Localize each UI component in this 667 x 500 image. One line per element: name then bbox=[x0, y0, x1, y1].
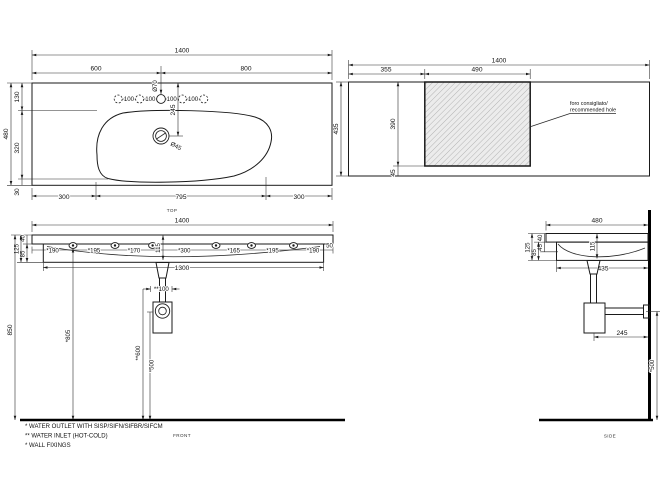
dim-fix-5: *165 bbox=[227, 247, 240, 254]
front-dim-body-width: 1300 bbox=[43, 263, 323, 272]
dim-hole-pitch: 100 bbox=[167, 96, 178, 103]
tailpipe bbox=[591, 274, 597, 303]
front-service-dims: **100 *805 **600 *500 bbox=[65, 248, 180, 420]
tap-hole-row: 100 100 100 100 Ø70 bbox=[114, 77, 208, 103]
note-line1: foro consigliato/ bbox=[570, 101, 608, 107]
tap-hole-optional-icon bbox=[200, 95, 208, 103]
dim-hole-pitch: 100 bbox=[145, 96, 156, 103]
top-view-dims-bottom: 300 795 300 bbox=[32, 177, 332, 201]
drain: Ø45 bbox=[153, 128, 183, 152]
side-dims-top: 480 bbox=[546, 218, 648, 231]
dim-drain-offset: 245 bbox=[170, 104, 177, 115]
dim-front-apron-height: 85 bbox=[20, 250, 27, 257]
front-dims-top: 1400 bbox=[32, 218, 333, 233]
dim-bottom-margin: 30 bbox=[14, 188, 21, 196]
cutout-view: 1400 355 490 435 390 45 foro consigliato… bbox=[333, 58, 650, 177]
basin-outline bbox=[97, 110, 272, 182]
side-view-label: SIDE bbox=[604, 434, 616, 439]
cutout-dims-left: 435 390 45 bbox=[333, 82, 425, 177]
legend-water-outlet: * WATER OUTLET WITH SISP/SIFN/SIFBR/SIFC… bbox=[25, 424, 163, 430]
dim-fix-3: *170 bbox=[128, 247, 141, 254]
tap-hole-optional-icon bbox=[114, 95, 122, 103]
side-dim-outlet-offset: 245 bbox=[594, 330, 648, 341]
tap-hole-optional-icon bbox=[136, 95, 144, 103]
dim-overall-depth: 480 bbox=[3, 128, 10, 139]
dim-side-overall-depth: 480 bbox=[591, 218, 602, 225]
side-dim-bottom-span: 435 bbox=[557, 260, 649, 272]
top-view-dims-left: 130 480 320 30 bbox=[3, 83, 108, 196]
fixing-bolt-icon bbox=[111, 243, 119, 249]
front-view-label: FRONT bbox=[173, 433, 191, 438]
legend-wall-fixings: * WALL FIXINGS bbox=[25, 443, 71, 449]
dim-hole-pitch: 100 bbox=[188, 96, 199, 103]
dim-basin-span: 320 bbox=[14, 142, 21, 153]
dim-side-front-height: 125 bbox=[525, 242, 532, 253]
dim-fix-4: *300 bbox=[178, 247, 191, 254]
dim-bottom-left: 300 bbox=[58, 194, 69, 201]
dim-side-outlet-height: *500 bbox=[649, 359, 656, 372]
dim-front-body-width: 1300 bbox=[175, 265, 190, 272]
trap-bottle bbox=[584, 303, 605, 333]
fixing-bolt-icon bbox=[248, 243, 256, 249]
dim-outlet-height: *500 bbox=[149, 359, 156, 372]
tailpipe-cone bbox=[156, 263, 169, 279]
front-slab bbox=[32, 235, 333, 244]
dim-overall-width: 1400 bbox=[175, 48, 190, 55]
top-view-label: TOP bbox=[167, 208, 178, 213]
dim-front-slab-thickness: 40 bbox=[20, 235, 27, 242]
dim-front-basin-depth: 115 bbox=[155, 243, 162, 253]
cutout-dims-top: 1400 355 490 bbox=[349, 58, 650, 80]
washbasin-drawing: 100 100 100 100 Ø70 Ø45 1400 600 800 bbox=[0, 0, 667, 500]
dim-bottom-center: 795 bbox=[175, 194, 186, 201]
fixing-bolt-icon bbox=[69, 243, 77, 249]
legend: * WATER OUTLET WITH SISP/SIFN/SIFBR/SIFC… bbox=[25, 424, 163, 449]
side-body bbox=[557, 242, 649, 260]
dim-cutout-hole-depth: 390 bbox=[390, 118, 397, 129]
dim-edge: 50 bbox=[326, 243, 333, 250]
dim-edge-to-basin: 130 bbox=[14, 91, 21, 102]
tap-hole-icon bbox=[157, 95, 166, 104]
technical-drawing-sheet: 100 100 100 100 Ø70 Ø45 1400 600 800 bbox=[0, 0, 667, 500]
dim-cutout-offset-left: 355 bbox=[380, 67, 391, 74]
dim-front-overall-height: 850 bbox=[7, 324, 14, 335]
dim-bottom-right: 300 bbox=[293, 194, 304, 201]
top-view-dims-top: 1400 600 800 bbox=[32, 48, 332, 81]
dim-right-span: 800 bbox=[240, 66, 251, 73]
note-leader bbox=[531, 114, 570, 127]
siphon-trap-side bbox=[584, 261, 650, 334]
dim-hole-pitch: 100 bbox=[124, 96, 135, 103]
dim-cutout-overall-depth: 435 bbox=[333, 123, 340, 134]
dim-tap-hole-dia: Ø70 bbox=[152, 80, 159, 92]
dim-side-lip-height: 45 bbox=[537, 244, 544, 251]
note-line2: recommended hole bbox=[570, 108, 616, 114]
top-view: 100 100 100 100 Ø70 Ø45 1400 600 800 bbox=[3, 48, 332, 214]
dim-front-height: 125 bbox=[14, 243, 21, 254]
trap-joint-inner-icon bbox=[159, 307, 167, 315]
tap-hole-optional-icon bbox=[178, 95, 186, 103]
front-dims-left: 40 85 125 850 bbox=[7, 235, 43, 420]
side-view: 480 40 45 85 125 115 435 bbox=[525, 210, 661, 439]
dim-outlet-wall-offset: 245 bbox=[616, 330, 627, 337]
top-view-dim-drain-offset: 245 bbox=[169, 83, 183, 136]
dim-cutout-hole-width: 490 bbox=[471, 67, 482, 74]
dim-cutout-overall-width: 1400 bbox=[492, 58, 507, 65]
side-basin-curve bbox=[558, 244, 645, 257]
recommended-hole-note: foro consigliato/ recommended hole bbox=[531, 101, 616, 127]
front-view: 1400 *190 *195 *170 *300 *165 *195 *190 … bbox=[7, 218, 345, 439]
fixing-bolt-icon bbox=[290, 243, 298, 249]
dim-drain-dia: Ø45 bbox=[169, 141, 183, 153]
legend-water-inlet: ** WATER INLET (HOT-COLD) bbox=[25, 434, 108, 440]
dim-front-overall-width: 1400 bbox=[175, 218, 190, 225]
dim-side-basin-depth: 115 bbox=[590, 241, 597, 251]
dim-fixing-height: *805 bbox=[65, 329, 72, 342]
dim-side-slab-thickness: 40 bbox=[537, 234, 544, 241]
dim-inlet-height: **600 bbox=[135, 345, 142, 361]
dim-fix-1: *190 bbox=[46, 247, 59, 254]
dim-inlet-spacing: **100 bbox=[154, 286, 170, 293]
dim-fix-2: *195 bbox=[88, 247, 101, 254]
fixing-bolt-icon bbox=[212, 243, 220, 249]
dim-left-span: 600 bbox=[90, 66, 101, 73]
outlet-pipe bbox=[605, 308, 644, 315]
dim-fix-7: *190 bbox=[307, 247, 320, 254]
dim-cutout-bottom-margin: 45 bbox=[390, 169, 397, 177]
recommended-hole-rect bbox=[425, 82, 530, 166]
siphon-trap-front bbox=[153, 263, 172, 334]
dim-fix-6: *195 bbox=[266, 247, 279, 254]
